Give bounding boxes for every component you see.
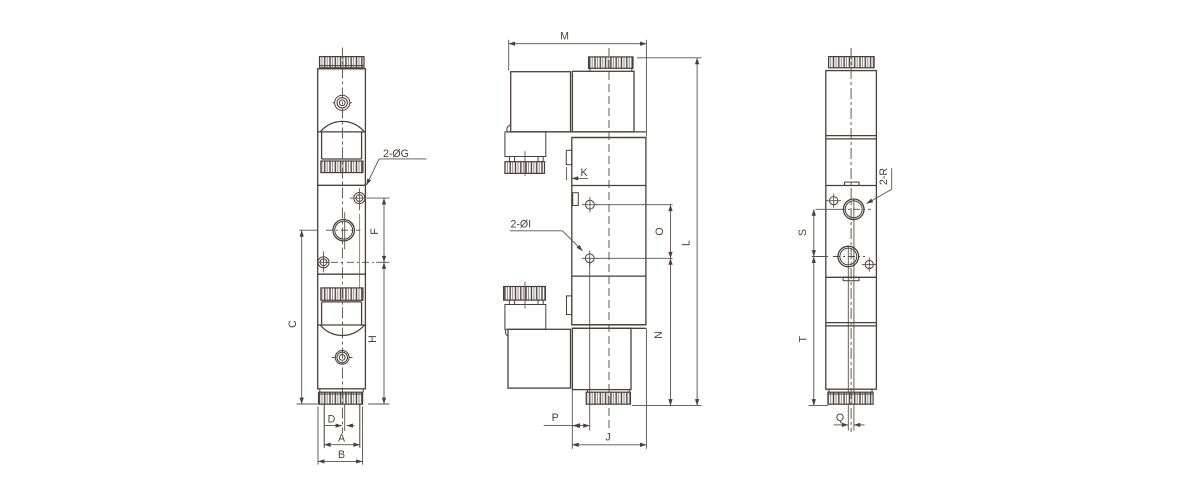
svg-text:H: H [367, 335, 379, 343]
svg-text:J: J [605, 432, 610, 444]
svg-text:A: A [338, 432, 346, 444]
svg-text:K: K [581, 167, 588, 179]
svg-text:B: B [338, 449, 345, 461]
svg-text:P: P [552, 412, 559, 424]
svg-text:2-ØI: 2-ØI [511, 218, 532, 230]
svg-text:2-ØG: 2-ØG [383, 148, 409, 160]
svg-text:T: T [797, 335, 809, 342]
svg-text:N: N [653, 331, 665, 339]
svg-text:2-R: 2-R [878, 168, 890, 185]
svg-text:C: C [287, 320, 299, 328]
svg-text:S: S [797, 229, 809, 236]
svg-text:D: D [328, 414, 336, 426]
svg-text:Q: Q [836, 412, 844, 424]
svg-text:M: M [560, 31, 569, 43]
svg-text:O: O [654, 227, 666, 235]
svg-text:L: L [680, 240, 692, 246]
svg-text:F: F [369, 228, 381, 235]
